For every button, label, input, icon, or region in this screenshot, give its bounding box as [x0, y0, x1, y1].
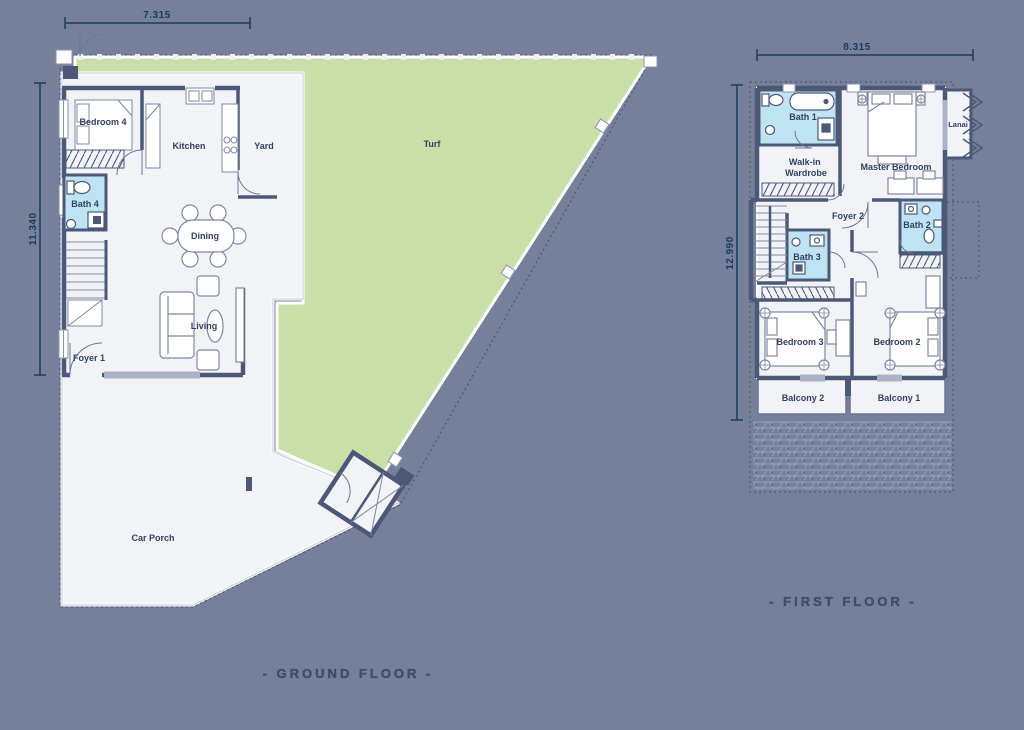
roof-tiles [753, 420, 952, 490]
sliding-door [800, 375, 825, 382]
room-label-bedroom2: Bedroom 2 [873, 337, 920, 347]
balcony-divider-wall [845, 378, 851, 396]
room-label-foyer1: Foyer 1 [73, 353, 105, 363]
ground-floor-plan: Bedroom 4 Kitchen Yard Turf Bath 4 Dinin… [28, 10, 657, 681]
floor-plan-canvas: Bedroom 4 Kitchen Yard Turf Bath 4 Dinin… [0, 0, 1024, 730]
room-label-foyer2: Foyer 2 [832, 211, 864, 221]
porch-column [246, 477, 252, 491]
ff-height-dim-label: 12.990 [725, 236, 736, 270]
room-label-bath2: Bath 2 [903, 220, 931, 230]
room-label-yard: Yard [254, 141, 274, 151]
first-floor-plan: Bath 1 Walk-in Wardrobe Master Bedroom L… [725, 42, 982, 609]
room-label-turf: Turf [424, 139, 442, 149]
room-label-balcony1: Balcony 1 [878, 393, 921, 403]
ground-floor-title: - GROUND FLOOR - [263, 666, 434, 681]
ff-width-dim-label: 8.315 [843, 42, 871, 53]
floor-plan-page: Bedroom 4 Kitchen Yard Turf Bath 4 Dinin… [0, 0, 1024, 730]
room-label-car-porch: Car Porch [131, 533, 174, 543]
room-label-bath1: Bath 1 [789, 112, 817, 122]
wardrobe-hatch [66, 150, 124, 168]
room-label-bath3: Bath 3 [793, 252, 821, 262]
sliding-door [104, 372, 200, 379]
room-label-bath4: Bath 4 [71, 199, 99, 209]
room-label-master: Master Bedroom [860, 162, 931, 172]
room-label-kitchen: Kitchen [172, 141, 205, 151]
wardrobe-hatch [900, 255, 940, 268]
wardrobe-hatch [762, 287, 834, 300]
room-label-balcony2: Balcony 2 [782, 393, 825, 403]
first-floor-title: - FIRST FLOOR - [769, 594, 917, 609]
gf-height-dim-label: 11.340 [28, 212, 39, 245]
room-label-dining: Dining [191, 231, 219, 241]
room-label-lanai: Lanai [948, 120, 968, 129]
sliding-door [877, 375, 902, 382]
sliding-window [943, 100, 948, 150]
wardrobe-hatch [762, 183, 834, 196]
gf-width-dim-label: 7.315 [143, 10, 171, 21]
basin-icon [67, 220, 76, 229]
ac-ledge-dotted [947, 202, 979, 278]
room-label-bedroom3: Bedroom 3 [776, 337, 823, 347]
room-label-walkin-wardrobe: Walk-in Wardrobe [785, 157, 827, 178]
shower-icon [88, 212, 104, 228]
room-label-bedroom4: Bedroom 4 [79, 117, 126, 127]
room-label-living: Living [191, 321, 218, 331]
toilet-icon [67, 181, 90, 194]
